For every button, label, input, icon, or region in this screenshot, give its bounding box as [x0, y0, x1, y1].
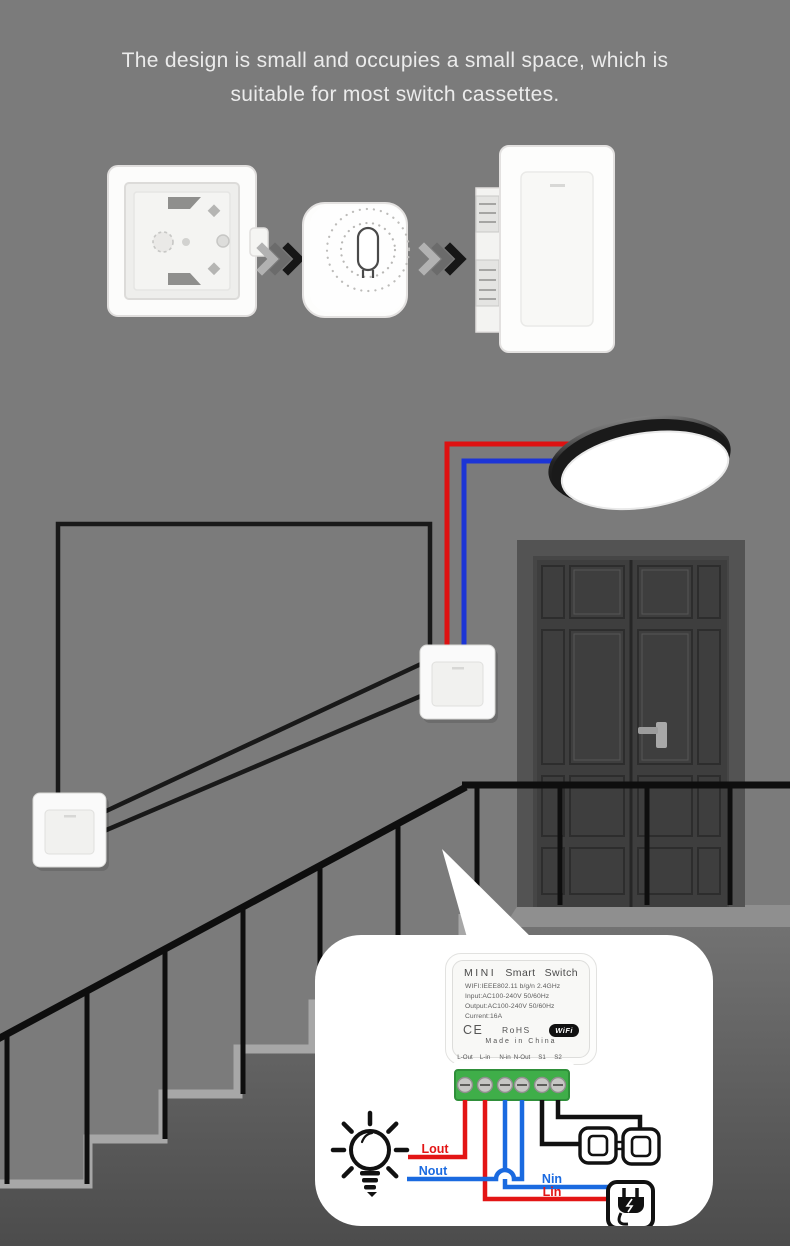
- nin-label: Nin: [542, 1172, 562, 1186]
- device-title-word: Switch: [545, 967, 578, 979]
- spec-line: Output:AC100-240V 50/60Hz: [465, 1002, 589, 1012]
- smart-switch-device: MINI Smart Switch WIFI:IEEE802.11 b/g/n …: [445, 953, 597, 1065]
- arrow-2: [424, 248, 461, 270]
- arrow-1: [262, 248, 299, 270]
- product-switch-cassette: [108, 166, 268, 316]
- black-wire-loop: [58, 524, 430, 795]
- device-title-word: Smart: [505, 967, 535, 979]
- spec-line: WIFI:IEEE802.11 b/g/n 2.4GHz: [465, 982, 589, 992]
- heading-line-1: The design is small and occupies a small…: [0, 44, 790, 78]
- ceiling-light: [542, 403, 738, 522]
- door-handle: [656, 722, 667, 748]
- spec-line: Current:16A: [465, 1012, 589, 1022]
- ce-mark: CE: [463, 1023, 483, 1037]
- wall-wiring: [58, 444, 588, 831]
- nout-label: Nout: [419, 1164, 448, 1178]
- spec-line: Input:AC100-240V 50/60Hz: [465, 992, 589, 1002]
- device-specs: WIFI:IEEE802.11 b/g/n 2.4GHz Input:AC100…: [465, 982, 589, 1022]
- wire-nin: [505, 1100, 608, 1187]
- wire-s2: [558, 1100, 640, 1129]
- wire-labels: Lout Nout Nin Lin: [419, 1142, 562, 1199]
- diagram-wires: [407, 1100, 640, 1199]
- wire-nout: [407, 1100, 522, 1179]
- left-wall-switch: [33, 793, 109, 871]
- wifi-logo: WiFi: [549, 1024, 579, 1037]
- terminal-tab: [451, 1061, 575, 1107]
- black-wire-traveler-1: [104, 664, 421, 812]
- module-button: [358, 228, 378, 270]
- terminal-screws: [458, 1078, 566, 1093]
- heading: The design is small and occupies a small…: [0, 44, 790, 112]
- product-wall-switch: [476, 146, 614, 352]
- light-bulb-icon: [333, 1113, 407, 1197]
- made-in-label: Made in China: [453, 1038, 589, 1045]
- product-infographic: The design is small and occupies a small…: [0, 0, 790, 1246]
- door: [517, 540, 745, 907]
- lin-label: Lin: [543, 1185, 562, 1199]
- switch-rocker: [521, 172, 593, 326]
- rohs-label: RoHS: [483, 1025, 549, 1035]
- black-wire-traveler-2: [104, 696, 421, 831]
- terminal-block: [455, 1070, 569, 1100]
- power-plug-icon: [608, 1182, 653, 1226]
- lout-label: Lout: [421, 1142, 449, 1156]
- two-wall-switches-icon: [580, 1128, 659, 1164]
- callout-bubble: MINI Smart Switch WIFI:IEEE802.11 b/g/n …: [315, 935, 713, 1226]
- heading-line-2: suitable for most switch cassettes.: [0, 78, 790, 112]
- center-wall-switch: [420, 645, 498, 723]
- door-handle-lever: [638, 727, 658, 734]
- wire-s1: [542, 1100, 580, 1144]
- device-title-word: MINI: [464, 967, 496, 979]
- floor-strip: [504, 905, 790, 927]
- certification-row: CE RoHS WiFi: [463, 1023, 579, 1037]
- wire-lout: [408, 1100, 465, 1157]
- wire-crossing-gap: [499, 1170, 511, 1179]
- device-title: MINI Smart Switch: [453, 961, 589, 979]
- wire-lin: [485, 1100, 608, 1199]
- product-mini-smart-switch: [303, 203, 409, 317]
- device-label-panel: MINI Smart Switch WIFI:IEEE802.11 b/g/n …: [452, 960, 590, 1058]
